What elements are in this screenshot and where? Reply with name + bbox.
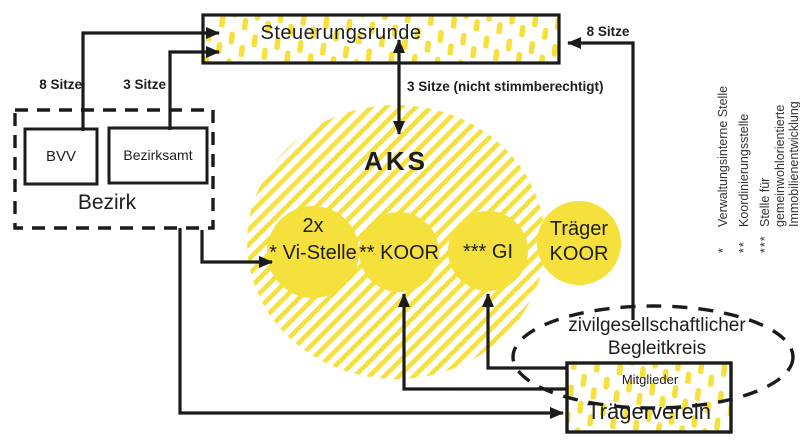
steuerungsrunde-label: Steuerungsrunde [216,22,466,45]
legend-item-koor: ** Koordinierungsstelle [737,53,752,253]
legend: * Verwaltungsinterne Stelle ** Koordinie… [712,53,796,253]
aks-sitze-label: 3 Sitze (nicht stimmberechtigt) [407,79,604,94]
bezirksamt-label: Bezirksamt [109,147,207,163]
bvv-sitze-label: 8 Sitze [20,77,82,92]
traegerverein-label: Trägerverein [574,399,724,425]
legend-item-gi: *** Stelle für gemeinwohlorientierte Imm… [758,53,800,253]
begleitkreis-label: zivilgesellschaftlicher Begleitkreis [513,314,800,360]
mitglieder-label: Mitglieder [589,372,711,387]
vi-stelle-label: 2x * Vi-Stelle [263,213,363,267]
triple-asterisk-marker: *** [758,227,800,253]
begleitkreis-sitze-label: 8 Sitze [580,24,636,39]
gi-label: *** GI [438,239,538,266]
legend-item-vi-stelle: * Verwaltungsinterne Stelle [716,53,731,253]
bvv-label: BVV [25,148,97,165]
bezirk-label: Bezirk [40,191,174,215]
governance-diagram: Steuerungsrunde 8 Sitze 3 Sitze 8 Sitze … [0,0,800,444]
asterisk-marker: * [716,227,731,253]
traeger-koor-label: Träger KOOR [529,217,629,267]
aks-title: AKS [336,146,456,177]
koor-label: ** KOOR [349,240,449,267]
double-asterisk-marker: ** [737,227,752,253]
bezirksamt-sitze-label: 3 Sitze [104,77,166,92]
